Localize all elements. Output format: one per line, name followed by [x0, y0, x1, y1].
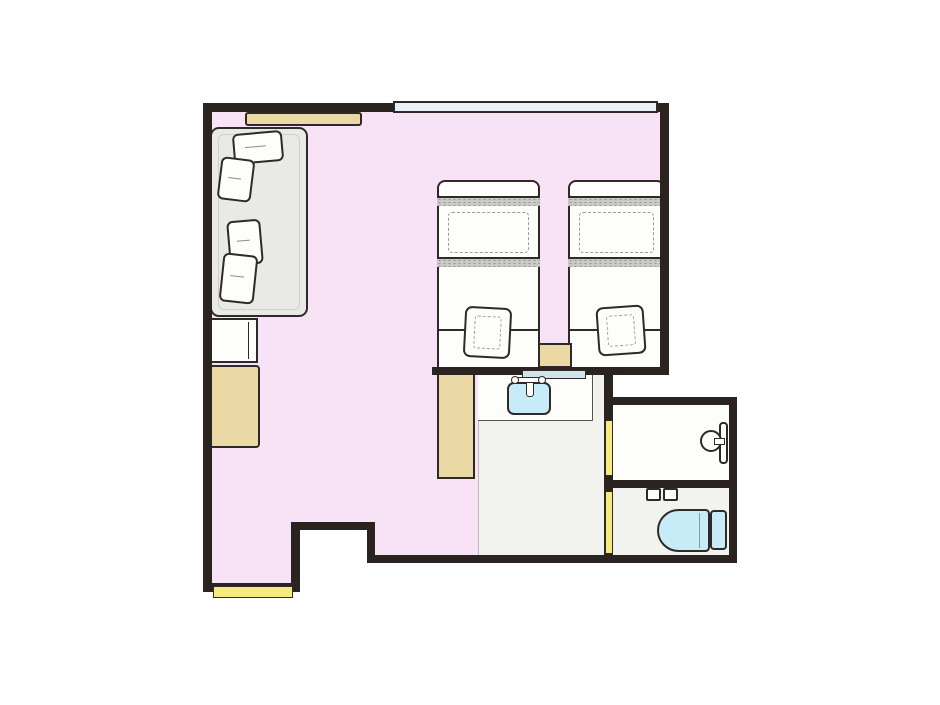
toilet-bowl-icon [657, 509, 710, 552]
wall-notch-left [291, 522, 300, 592]
hanger-rack-icon [245, 112, 362, 126]
mid-cabinet [437, 372, 475, 479]
wall-shower-toilet-divider [604, 480, 737, 488]
sofa-pillow-icon [217, 156, 256, 203]
left-cabinet [209, 365, 260, 448]
faucet-knob-icon [511, 376, 519, 384]
toilet-control-button-icon [663, 488, 678, 501]
side-table [208, 318, 258, 363]
shower-sliding-door [605, 420, 613, 476]
bed-cushion-icon [463, 306, 513, 359]
faucet-knob-icon [538, 376, 546, 384]
faucet-spout-icon [526, 382, 534, 397]
wall-bottom-right [367, 555, 737, 563]
bed-pillow-area [437, 206, 540, 259]
entrance-door [213, 586, 293, 598]
wall-bathroom-top [608, 397, 737, 405]
toilet-sliding-door [605, 491, 613, 554]
bed-cushion-icon [595, 304, 646, 356]
nightstand [538, 343, 572, 368]
wall-right-main [660, 103, 669, 375]
side-table-divider [248, 322, 249, 359]
sofa-pillow-icon [219, 252, 259, 304]
toilet-control-button-icon [646, 488, 661, 501]
floor-plan [0, 0, 940, 705]
wall-left [203, 103, 212, 592]
window [393, 101, 658, 113]
toilet-tank-icon [710, 510, 727, 550]
bed-pillow-area [568, 206, 665, 259]
wall-notch-top [291, 522, 375, 530]
shower-arm-icon [714, 438, 725, 445]
